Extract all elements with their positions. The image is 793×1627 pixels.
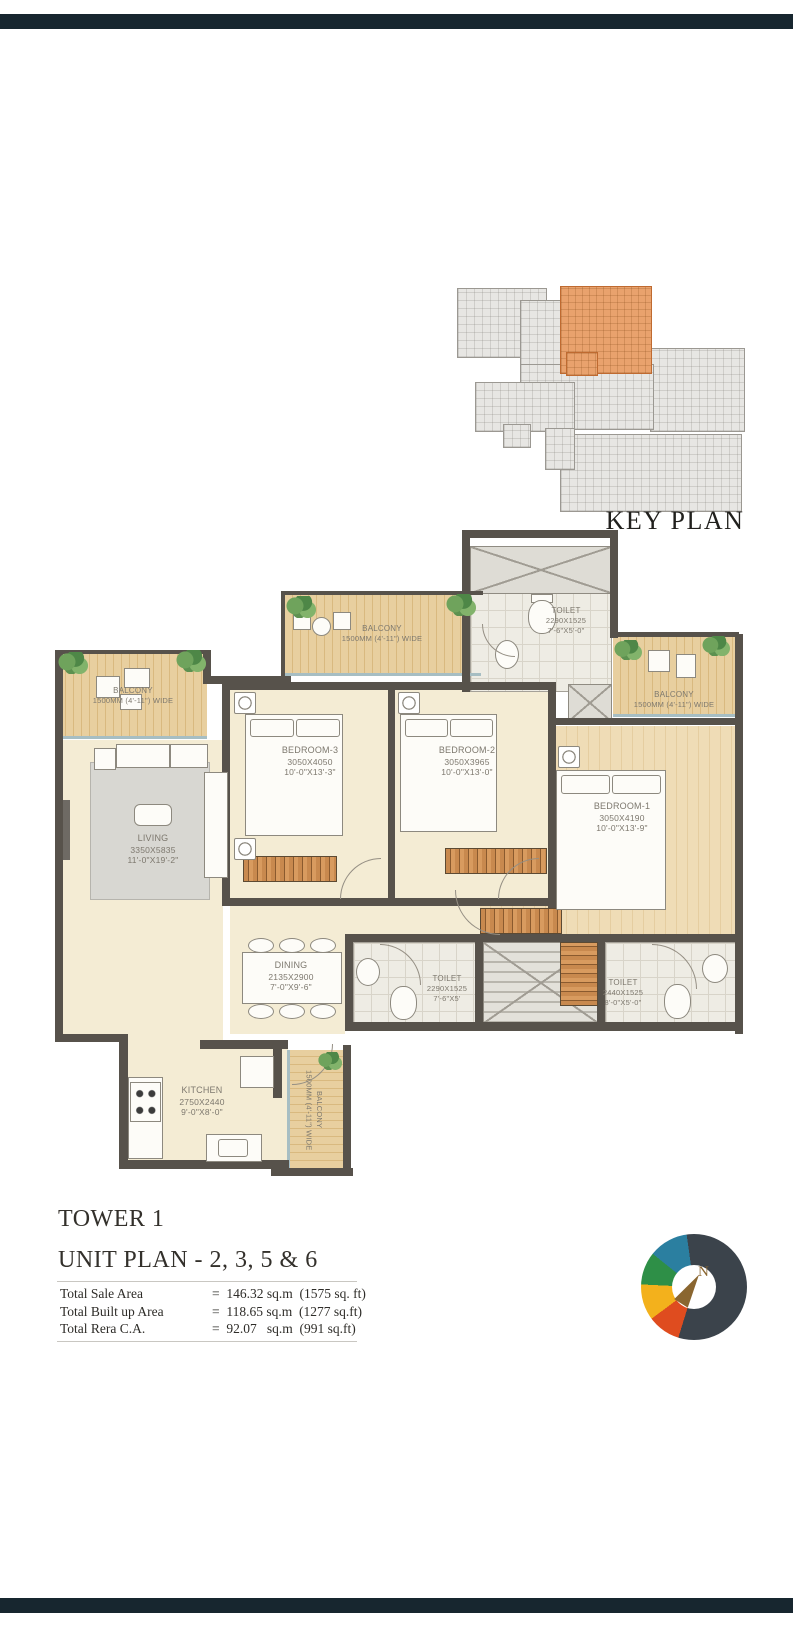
wall bbox=[345, 1022, 743, 1031]
wall bbox=[55, 1034, 127, 1042]
north-letter: N bbox=[698, 1264, 709, 1281]
key-plan-block bbox=[503, 424, 531, 448]
balcony-glass bbox=[287, 1050, 290, 1168]
bedroom1-label: BEDROOM-1 3050X4190 10'-0"X13'-9" bbox=[562, 801, 682, 834]
pillow-icon bbox=[561, 775, 610, 794]
wall bbox=[55, 650, 63, 1042]
plant-icon bbox=[702, 636, 730, 656]
wall bbox=[735, 634, 743, 1034]
toilet-mid-label: TOILET 2290X1525 7'-6"X5' bbox=[397, 974, 497, 1003]
wall bbox=[462, 530, 618, 538]
chair-icon bbox=[310, 1004, 336, 1019]
chair-icon bbox=[124, 668, 150, 688]
tower-title: TOWER 1 bbox=[58, 1206, 164, 1233]
wardrobe bbox=[243, 856, 337, 882]
wall bbox=[222, 682, 556, 690]
dining-label: DINING 2135X2900 7'-0"X9'-6" bbox=[241, 960, 341, 993]
wall bbox=[388, 690, 395, 898]
fridge-icon bbox=[240, 1056, 274, 1088]
plant-icon bbox=[176, 650, 206, 672]
balcony-left-label: BALCONY 1500MM (4'-11") WIDE bbox=[73, 686, 193, 706]
plant-icon bbox=[614, 640, 642, 660]
divider bbox=[57, 1281, 357, 1282]
area-row: Total Rera C.A.= 92.07 sq.m (991 sq.ft) bbox=[60, 1320, 366, 1338]
top-rule-bar bbox=[0, 14, 793, 29]
kitchen-label: KITCHEN 2750X2440 9'-0"X8'-0" bbox=[142, 1085, 262, 1118]
tv-unit-icon bbox=[63, 800, 70, 860]
area-table: Total Sale Area= 146.32 sq.m (1575 sq. f… bbox=[60, 1285, 366, 1338]
balcony-bottom-label: BALCONY 1500MM (4'-11") WIDE bbox=[303, 1058, 324, 1162]
plant-icon bbox=[58, 652, 88, 674]
sink-icon bbox=[218, 1139, 248, 1157]
washbasin-icon bbox=[702, 954, 728, 983]
unit-plan-title: UNIT PLAN - 2, 3, 5 & 6 bbox=[58, 1247, 318, 1274]
shaft-right bbox=[568, 684, 612, 722]
bedside-table-icon bbox=[398, 692, 420, 714]
pillow-icon bbox=[612, 775, 661, 794]
plant-icon bbox=[286, 596, 316, 618]
balcony-glass bbox=[613, 714, 735, 717]
pillow-icon bbox=[450, 719, 493, 737]
wall bbox=[119, 1160, 289, 1169]
bedside-table-icon bbox=[234, 838, 256, 860]
wall bbox=[226, 898, 552, 906]
bedside-table-icon bbox=[558, 746, 580, 768]
brochure-page: KEY PLAN bbox=[0, 0, 793, 1627]
plant-icon bbox=[446, 594, 476, 616]
bedroom3-label: BEDROOM-3 3050X4050 10'-0"X13'-3" bbox=[250, 745, 370, 778]
divider bbox=[57, 1341, 357, 1342]
pillow-icon bbox=[250, 719, 294, 737]
key-plan-block bbox=[650, 348, 745, 432]
wall bbox=[273, 1040, 282, 1098]
balcony-glass bbox=[58, 736, 207, 739]
wall bbox=[119, 1034, 128, 1168]
chair-icon bbox=[648, 650, 670, 672]
wall bbox=[345, 934, 743, 942]
rug bbox=[90, 762, 210, 900]
chair-icon bbox=[248, 1004, 274, 1019]
toilet-right-label: TOILET 2440X1525 8'-0"X5'-0" bbox=[573, 978, 673, 1007]
wall bbox=[271, 1168, 353, 1176]
bedroom2-label: BEDROOM-2 3050X3965 10'-0"X13'-0" bbox=[407, 745, 527, 778]
sofa-icon bbox=[170, 744, 208, 768]
chair-icon bbox=[279, 1004, 305, 1019]
washbasin-icon bbox=[356, 958, 380, 986]
bedside-table-icon bbox=[234, 692, 256, 714]
area-row: Total Sale Area= 146.32 sq.m (1575 sq. f… bbox=[60, 1285, 366, 1303]
coffee-table-icon bbox=[134, 804, 172, 826]
chair-icon bbox=[248, 938, 274, 953]
balcony-right-label: BALCONY 1500MM (4'-11") WIDE bbox=[614, 690, 734, 710]
key-plan-highlighted-unit-tail bbox=[566, 352, 598, 376]
balcony-glass bbox=[285, 673, 481, 676]
sofa-icon bbox=[116, 744, 170, 768]
key-plan-block bbox=[560, 434, 742, 512]
toilet-top-label: TOILET 2290X1525 7'-6"X5'-0" bbox=[516, 606, 616, 635]
chair-icon bbox=[279, 938, 305, 953]
balcony-top-label: BALCONY 1500MM (4'-11") WIDE bbox=[322, 624, 442, 644]
armchair-icon bbox=[94, 748, 116, 770]
shaft-top bbox=[470, 546, 612, 594]
wall bbox=[345, 942, 353, 1030]
key-plan-block bbox=[545, 428, 575, 470]
wall bbox=[281, 591, 285, 679]
wall bbox=[548, 718, 740, 725]
wall bbox=[548, 682, 556, 908]
bottom-rule-bar bbox=[0, 1598, 793, 1613]
chair-icon bbox=[310, 938, 336, 953]
pillow-icon bbox=[405, 719, 448, 737]
chair-icon bbox=[676, 654, 696, 678]
living-label: LIVING 3350X5835 11'-0"X19'-2" bbox=[93, 833, 213, 866]
wall bbox=[343, 1045, 351, 1176]
area-row: Total Built up Area= 118.65 sq.m (1277 s… bbox=[60, 1303, 366, 1321]
pillow-icon bbox=[296, 719, 340, 737]
